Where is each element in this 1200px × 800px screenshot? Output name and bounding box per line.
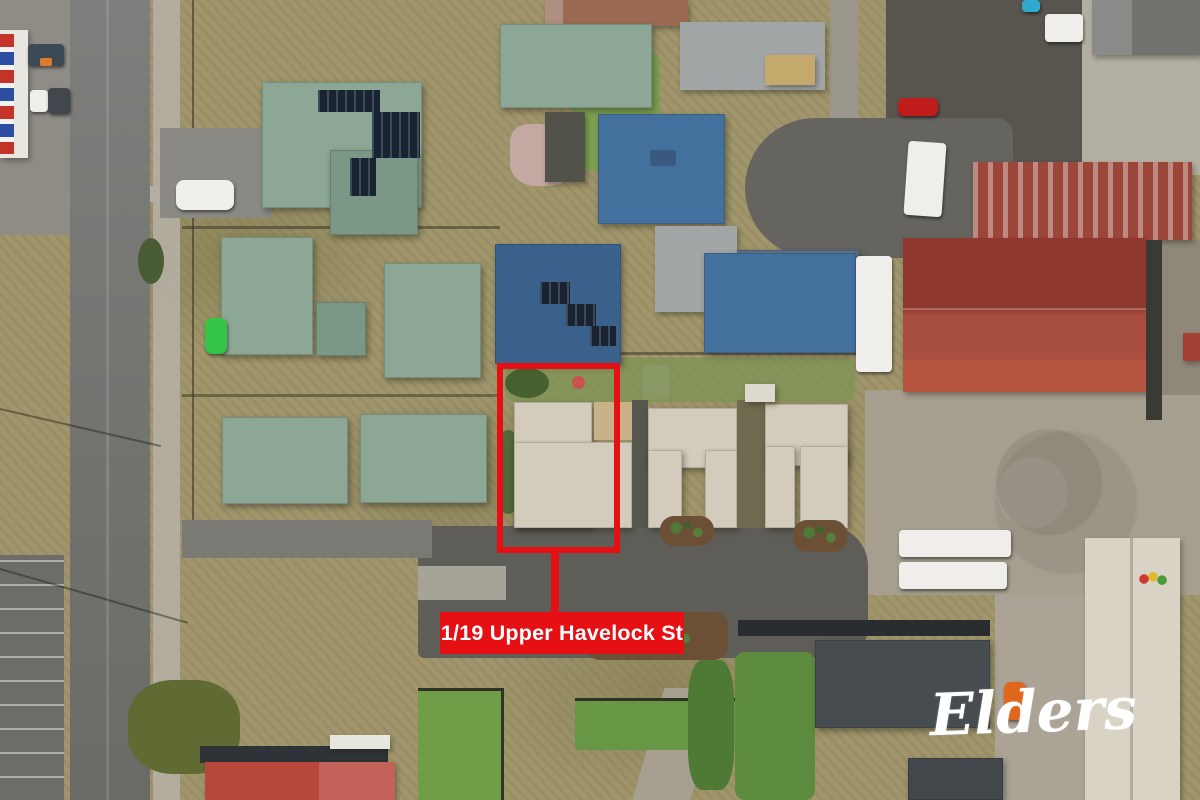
brick-building-top: [545, 0, 688, 26]
white-building-edge: [330, 735, 390, 749]
small-red-building: [1183, 333, 1200, 361]
fuel-truck-cab: [40, 58, 52, 66]
garden-bed-1: [660, 516, 714, 546]
carport-beam: [738, 620, 990, 636]
house-slate-2: [908, 758, 1003, 800]
trailer-dark: [48, 88, 70, 114]
backyard-shed-white: [745, 384, 775, 402]
solar-panels-3: [350, 158, 376, 196]
fence-line-row2: [182, 394, 500, 397]
address-label: 1/19 Upper Havelock St: [440, 612, 684, 654]
white-bus-vertical: [856, 256, 892, 372]
white-bus-top: [903, 141, 946, 217]
red-car-top: [898, 98, 938, 116]
hedge-bottom-right: [688, 660, 734, 790]
alley-units-1: [632, 400, 648, 528]
colored-drums: [1138, 568, 1168, 590]
solar-panels-blue2-c: [590, 326, 616, 346]
unit-3-roof-wing-right: [800, 446, 848, 528]
garden-shed-green: [316, 302, 366, 356]
house-green-c: [384, 263, 481, 378]
shed-rust-faded: [973, 162, 1192, 240]
house-blue-1-vent: [650, 150, 676, 166]
parking-lot-bottom-left: [0, 555, 64, 800]
solar-panels-blue2-b: [566, 304, 596, 326]
solar-panels-blue2-a: [540, 282, 570, 304]
alley-units-2: [737, 400, 765, 528]
house-green-d: [222, 417, 348, 504]
white-bus-parked-1: [899, 530, 1011, 557]
street-vertical-road: [70, 0, 150, 800]
white-van-top-right: [1045, 14, 1083, 42]
building-green-top: [500, 24, 652, 108]
shed-rust-large: [903, 238, 1146, 392]
solar-panels-2: [372, 112, 420, 158]
leader-line: [551, 549, 559, 615]
lawn-bottom-right: [735, 652, 815, 800]
roofs-dark-top-right: [1092, 0, 1200, 55]
fence-line-west: [192, 0, 194, 520]
garden-bed-2: [793, 520, 847, 552]
property-highlight-box: [497, 363, 620, 553]
unit-2-roof-wing-right: [705, 450, 737, 528]
aerial-photo: 1/19 Upper Havelock St Elders: [0, 0, 1200, 800]
service-station-sign: [0, 34, 14, 154]
clutter-dark-yard: [545, 112, 585, 182]
white-bus-parked-2: [899, 562, 1007, 589]
solar-panels-1: [318, 90, 380, 112]
unit-3-roof-wing-left: [765, 446, 795, 528]
shared-driveway-west: [182, 520, 432, 558]
road-worn-centerline: [106, 0, 109, 800]
shadow-wall-right: [1146, 240, 1162, 420]
house-red-roof-bottom: [205, 762, 395, 800]
lawn-bottom-left-corner: [418, 688, 504, 800]
brand-watermark: Elders: [929, 675, 1122, 762]
cream-building-ridge: [1130, 538, 1133, 800]
house-blue-2: [495, 244, 621, 364]
house-blue-1: [598, 114, 725, 224]
teal-car: [1022, 0, 1040, 12]
house-blue-3: [704, 253, 856, 353]
house-green-b: [221, 237, 313, 355]
concrete-crossing: [418, 566, 506, 600]
street-tree: [138, 238, 164, 284]
house-green-e: [360, 414, 487, 503]
white-ute: [30, 90, 48, 112]
shed-tan-section: [765, 55, 815, 85]
shed-rust-ridge: [903, 308, 1146, 310]
white-car-driveway: [176, 180, 234, 210]
green-car: [205, 318, 227, 354]
